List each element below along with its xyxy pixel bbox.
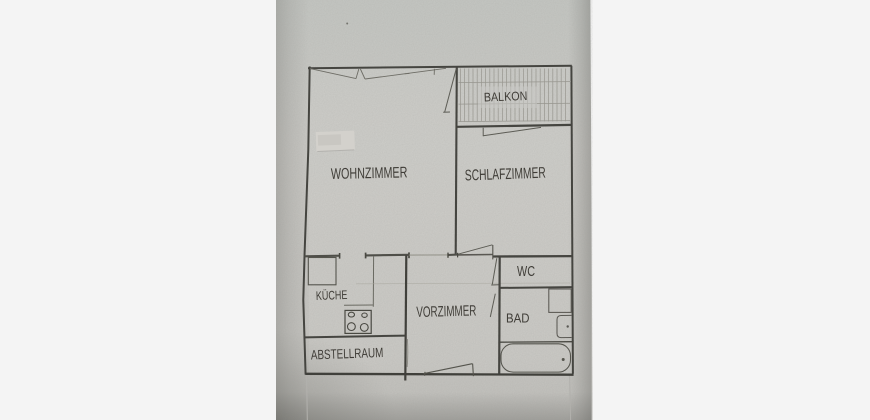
svg-text:WC: WC	[517, 264, 535, 280]
svg-text:BAD: BAD	[506, 312, 530, 326]
svg-text:KÜCHE: KÜCHE	[316, 288, 348, 303]
svg-text:VORZIMMER: VORZIMMER	[416, 302, 477, 321]
svg-text:BALKON: BALKON	[484, 89, 528, 105]
svg-text:WOHNZIMMER: WOHNZIMMER	[331, 164, 408, 183]
svg-text:ABSTELLRAUM: ABSTELLRAUM	[311, 345, 384, 363]
svg-text:SCHLAFZIMMER: SCHLAFZIMMER	[465, 165, 547, 185]
